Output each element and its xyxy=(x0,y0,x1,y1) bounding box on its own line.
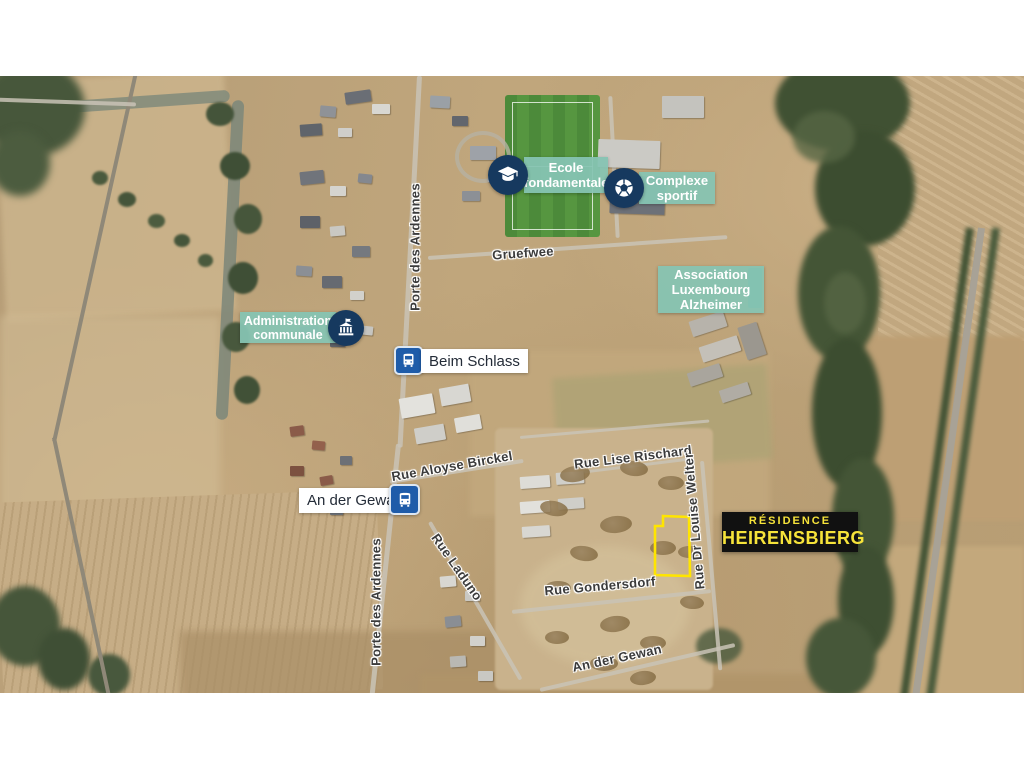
field-patch xyxy=(0,316,220,516)
building xyxy=(452,116,468,126)
building xyxy=(300,216,320,228)
building xyxy=(340,456,352,465)
street-label: Rue Laduno xyxy=(428,531,485,604)
forest-east-light xyxy=(793,111,855,163)
bus-stop-label-beim-schlass: Beim Schlass xyxy=(421,349,528,373)
building xyxy=(358,173,373,183)
house xyxy=(450,655,467,667)
tree-row xyxy=(198,254,213,267)
building xyxy=(290,466,304,476)
residence-line1: RÉSIDENCE xyxy=(722,515,858,527)
sports-hall xyxy=(662,96,704,118)
bus-icon xyxy=(389,484,420,515)
town-hall-icon xyxy=(328,310,364,346)
graduation-cap-icon xyxy=(488,155,528,195)
poi-label: fondamentale xyxy=(524,175,608,190)
residence-line2: HEIRENSBIERG xyxy=(722,528,858,549)
bus-icon xyxy=(394,346,423,375)
building xyxy=(330,186,346,196)
poi-label: Complexe xyxy=(639,173,715,188)
building xyxy=(352,246,370,257)
riverside-trees xyxy=(220,152,250,180)
building xyxy=(414,424,446,445)
residence-badge: RÉSIDENCE HEIRENSBIERG xyxy=(722,512,858,552)
aerial-map: Porte des Ardennes Gruefwee Rue Aloyse B… xyxy=(0,76,1024,693)
building xyxy=(350,291,364,300)
poi-badge-complexe: Complexe sportif xyxy=(639,172,715,204)
building xyxy=(320,105,337,117)
mound xyxy=(545,631,569,644)
soccer-ball-icon xyxy=(604,168,644,208)
tree-row xyxy=(92,171,108,185)
poi-badge-administration: Administration communale xyxy=(240,312,336,343)
building xyxy=(372,104,390,114)
poi-label: Ecole xyxy=(524,160,608,175)
screenshot-page: Porte des Ardennes Gruefwee Rue Aloyse B… xyxy=(0,0,1024,768)
poi-label: Administration xyxy=(240,314,336,328)
poi-label: communale xyxy=(240,328,336,342)
house xyxy=(470,636,485,646)
road xyxy=(428,235,728,260)
poi-label: Alzheimer xyxy=(658,297,764,312)
street-label: Porte des Ardennes xyxy=(369,538,384,666)
building xyxy=(296,265,313,276)
tree-row xyxy=(148,214,165,228)
building xyxy=(312,440,326,450)
street-label: Gruefwee xyxy=(492,243,555,262)
building xyxy=(299,170,324,185)
poi-badge-ecole: Ecole fondamentale xyxy=(524,157,608,193)
forest-east-light xyxy=(824,272,866,334)
poi-badge-association: Association Luxembourg Alzheimer xyxy=(658,266,764,313)
forest-east xyxy=(806,618,876,693)
mound xyxy=(658,476,684,490)
facility-building xyxy=(688,311,727,337)
riverside-trees xyxy=(228,262,258,294)
house xyxy=(478,671,493,681)
house xyxy=(444,615,461,628)
building xyxy=(338,128,352,137)
new-row-house xyxy=(522,525,551,538)
building xyxy=(300,123,323,137)
building xyxy=(430,95,451,108)
building xyxy=(322,276,342,288)
trees-bottom-left xyxy=(38,628,90,690)
building xyxy=(399,393,436,419)
tree-row xyxy=(174,234,190,247)
street-label: Porte des Ardennes xyxy=(408,183,423,311)
riverside-trees xyxy=(206,102,234,126)
tree-row xyxy=(118,192,136,207)
building xyxy=(319,475,333,486)
bus-stop-name: Beim Schlass xyxy=(429,353,520,370)
building xyxy=(470,146,496,160)
poi-label: Association xyxy=(658,267,764,282)
building xyxy=(330,225,346,236)
building xyxy=(344,89,371,105)
riverside-trees xyxy=(234,376,260,404)
house xyxy=(440,575,457,587)
building xyxy=(462,191,480,201)
riverside-trees xyxy=(234,204,262,234)
building xyxy=(289,425,304,437)
new-row-house xyxy=(520,475,551,489)
poi-label: sportif xyxy=(639,188,715,203)
poi-label: Luxembourg xyxy=(658,282,764,297)
building xyxy=(439,384,472,407)
